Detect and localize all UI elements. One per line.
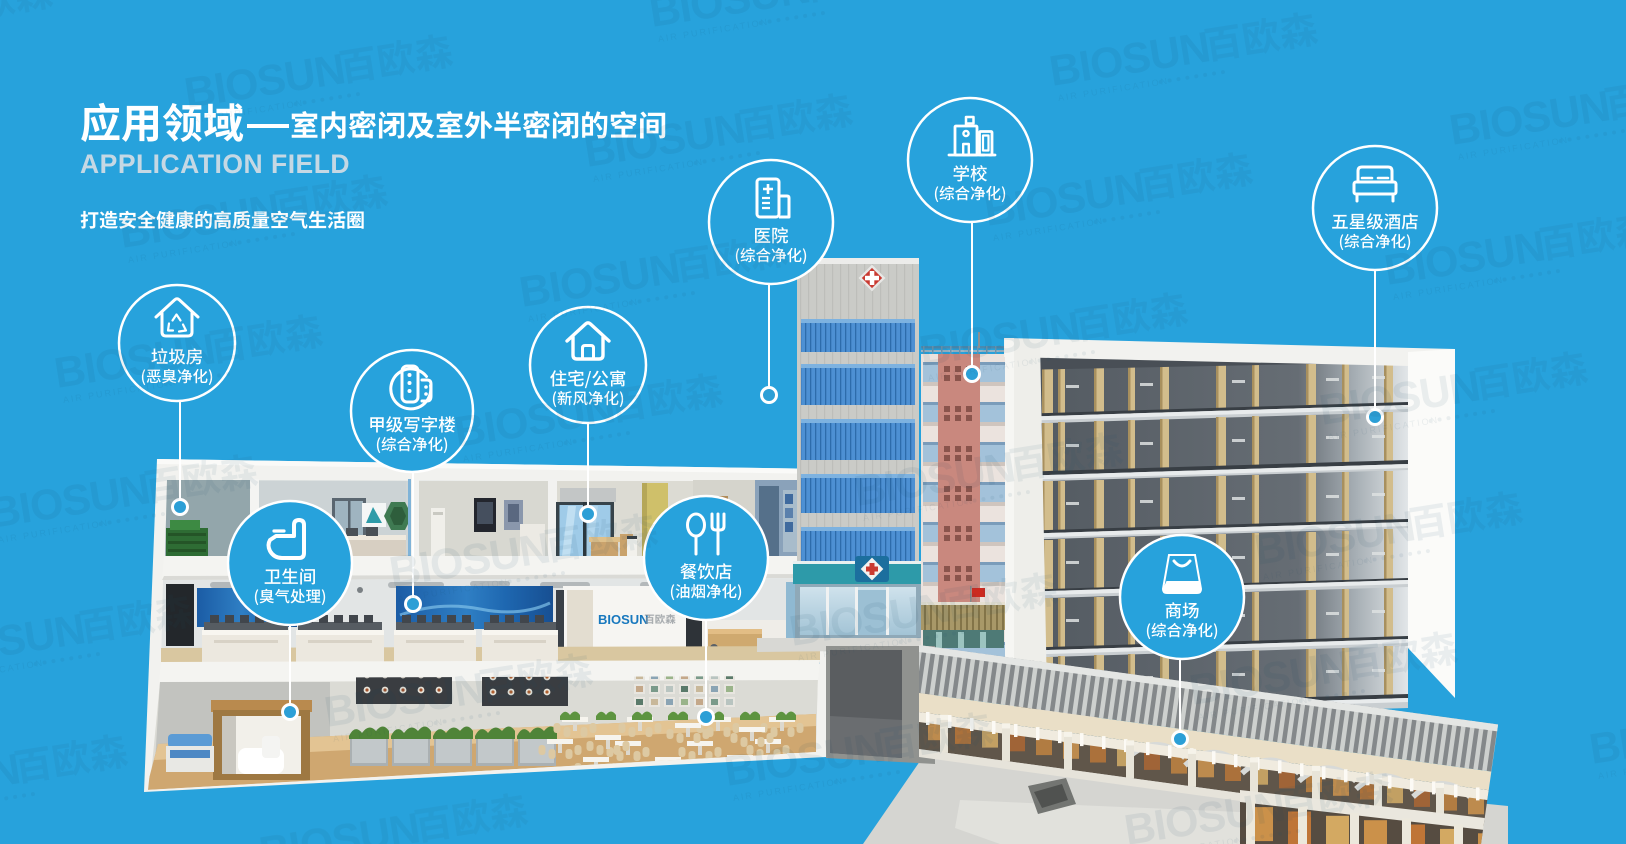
svg-text:APPLICATION FIELD: APPLICATION FIELD bbox=[80, 149, 350, 179]
svg-text:BIOSUN: BIOSUN bbox=[598, 612, 649, 627]
